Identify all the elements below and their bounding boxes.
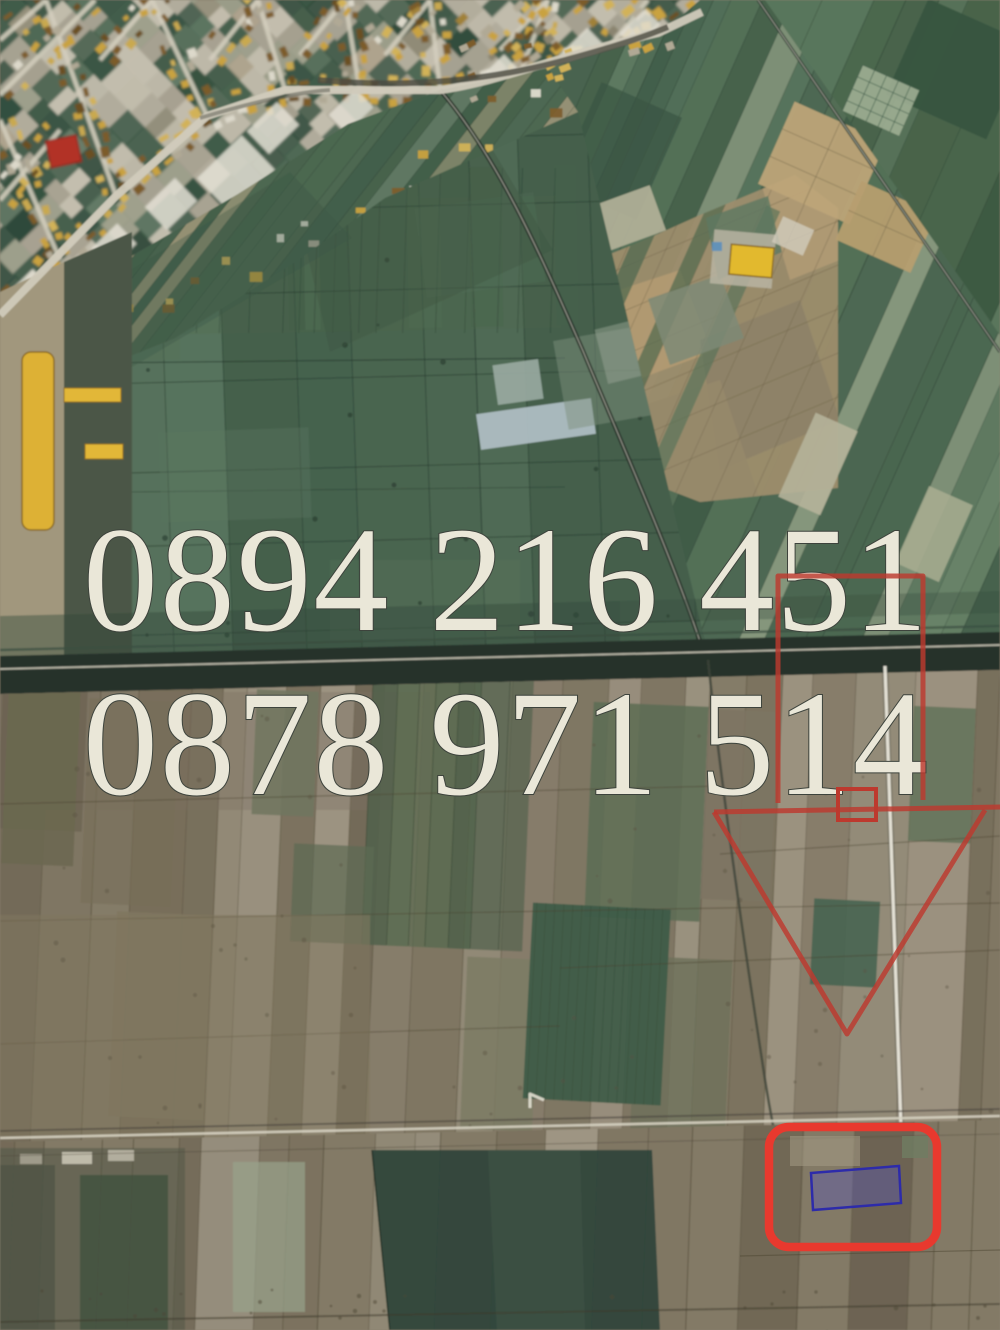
svg-text:0878 971 514: 0878 971 514 — [83, 661, 930, 827]
svg-text:0894 216 451: 0894 216 451 — [83, 497, 930, 663]
